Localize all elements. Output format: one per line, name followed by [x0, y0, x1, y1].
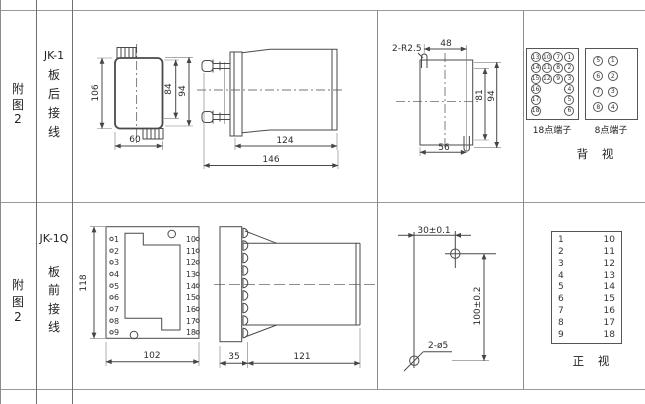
table-cell: 7	[558, 306, 564, 316]
terminal-circle: 1	[564, 52, 574, 62]
table-cell: 9	[558, 330, 564, 340]
left-border	[0, 0, 1, 404]
terminal-circle: 5	[593, 56, 603, 66]
terminal-circle: 17	[531, 95, 541, 105]
terminal-circle: 8	[593, 102, 603, 112]
dim-side2-plate-depth: 35	[228, 352, 239, 362]
front-terminal-10: 10	[182, 235, 196, 244]
rear-view-caption: 背 视	[553, 146, 637, 162]
terminal-circle: 2	[608, 71, 618, 81]
table-cell: 4	[558, 271, 564, 281]
terminal-block-8pt: 5 1 6 2 7 3 8 4	[585, 48, 638, 120]
terminal-circle: 2	[564, 63, 574, 73]
terminal-block-18pt-label: 18点端子	[524, 123, 580, 136]
dim-drill-h-span: 30±0.1	[417, 226, 450, 236]
row-divider	[0, 202, 645, 203]
table-cell: 10	[604, 235, 615, 245]
terminal-circle: 7	[553, 52, 563, 62]
front-terminal-11: 11	[182, 247, 196, 256]
terminal-circle: 16	[531, 84, 541, 94]
fig-label-row1-char3: 2	[0, 112, 36, 126]
table-cell: 17	[604, 318, 615, 328]
front-terminal-6: 6	[114, 293, 119, 302]
front-terminal-12: 12	[182, 258, 196, 267]
table-cell: 15	[604, 294, 615, 304]
terminal-circle: 18	[531, 106, 541, 116]
front-terminal-18: 18	[182, 328, 196, 337]
jk1-side-view-drawing	[195, 40, 347, 172]
dim-cutout-bottom-width: 56	[438, 143, 449, 153]
table-row: 514	[558, 282, 615, 292]
table-cell: 5	[558, 282, 564, 292]
table-cell: 13	[604, 271, 615, 281]
table-cell: 6	[558, 294, 564, 304]
drawing-sheet: 附 图 2 JK-1 板 后 接 线 106 84 94 60	[0, 0, 645, 404]
dim-side-total-depth: 146	[262, 155, 279, 165]
wiring-row2-char2: 前	[36, 281, 72, 298]
front-terminal-9: 9	[114, 328, 119, 337]
terminal-circle: 7	[593, 87, 603, 97]
dim-cutout-slot-note: 2-R2.5	[392, 44, 422, 54]
table-cell: 3	[558, 259, 564, 269]
terminal-circle: 14	[531, 63, 541, 73]
wiring-row1-char3: 接	[36, 104, 72, 121]
table-row: 413	[558, 271, 615, 281]
col-divider-2	[72, 0, 73, 404]
terminal-circle: 1	[608, 56, 618, 66]
dim-rear-height: 106	[91, 84, 101, 101]
table-cell: 2	[558, 247, 564, 257]
wiring-row2-char1: 板	[36, 263, 72, 280]
terminal-circle: 4	[564, 84, 574, 94]
terminal-circle: 4	[608, 102, 618, 112]
table-row: 918	[558, 330, 615, 340]
front-terminal-4: 4	[114, 270, 119, 279]
terminal-circle: 5	[564, 95, 574, 105]
fig-label-row2-char1: 附	[0, 276, 36, 293]
dim-drill-v-span: 100±0.2	[473, 286, 483, 325]
front-terminal-16: 16	[182, 305, 196, 314]
terminal-block-18pt: 13 10 7 1 14 11 8 2 15 12 9 3 16 4 17 5 …	[526, 48, 579, 120]
model-label-jk1q: JK-1Q	[36, 232, 72, 245]
terminal-circle: 10	[542, 52, 552, 62]
jk1q-side-view-drawing	[212, 218, 378, 374]
terminal-circle: 13	[531, 52, 541, 62]
terminal-circle: 6	[564, 106, 574, 116]
table-row: 615	[558, 294, 615, 304]
dim-front-height: 118	[79, 274, 89, 291]
dim-rear-inner-height: 84	[164, 83, 174, 94]
terminal-circle: 12	[542, 74, 552, 84]
terminal-circle: 8	[553, 63, 563, 73]
table-cell: 14	[604, 282, 615, 292]
table-row: 211	[558, 247, 615, 257]
table-row: 817	[558, 318, 615, 328]
dim-side2-body-depth: 121	[293, 352, 310, 362]
front-terminal-2: 2	[114, 247, 119, 256]
dim-cutout-outer-height: 94	[487, 90, 497, 101]
front-view-caption: 正 视	[549, 353, 633, 369]
table-cell: 11	[604, 247, 615, 257]
terminal-circle: 15	[531, 74, 541, 84]
front-terminal-7: 7	[114, 305, 119, 314]
fig-label-row1-char1: 附	[0, 80, 36, 97]
top-border	[0, 10, 645, 11]
wiring-row1-char1: 板	[36, 66, 72, 83]
front-terminal-5: 5	[114, 282, 119, 291]
terminal-circle: 11	[542, 63, 552, 73]
dim-side-body-depth: 124	[276, 136, 293, 146]
dim-drill-hole-note: 2-ø5	[428, 341, 448, 351]
terminal-circle: 6	[593, 71, 603, 81]
table-row: 312	[558, 259, 615, 269]
table-row: 110	[558, 235, 615, 245]
wiring-row1-char2: 后	[36, 85, 72, 102]
front-terminal-15: 15	[182, 293, 196, 302]
terminal-block-8pt-label: 8点端子	[583, 123, 639, 136]
model-label-jk1: JK-1	[36, 49, 72, 62]
fig-label-row2-char3: 2	[0, 310, 36, 324]
terminal-circle: 3	[564, 74, 574, 84]
dim-rear-outer-height: 94	[178, 85, 188, 96]
table-row: 716	[558, 306, 615, 316]
dim-cutout-inner-height: 81	[475, 89, 485, 100]
wiring-row2-char4: 线	[36, 318, 72, 335]
front-terminal-3: 3	[114, 258, 119, 267]
terminal-circle: 3	[608, 87, 618, 97]
terminal-circle: 9	[553, 74, 563, 84]
bottom-border	[0, 389, 645, 390]
jk1q-drill-pattern-drawing	[392, 226, 506, 378]
front-terminal-1: 1	[114, 235, 119, 244]
front-terminal-8: 8	[114, 317, 119, 326]
front-terminal-13: 13	[182, 270, 196, 279]
wiring-row1-char4: 线	[36, 123, 72, 140]
wiring-row2-char3: 接	[36, 300, 72, 317]
table-cell: 12	[604, 259, 615, 269]
dim-cutout-slot-span: 48	[440, 39, 451, 49]
front-terminal-14: 14	[182, 282, 196, 291]
terminal-number-table: 110 211 312 413 514 615 716 817 918	[551, 231, 622, 344]
dim-rear-width: 60	[129, 135, 140, 145]
front-terminal-17: 17	[182, 317, 196, 326]
table-cell: 16	[604, 306, 615, 316]
table-cell: 18	[604, 330, 615, 340]
col-divider-4	[523, 10, 524, 390]
fig-label-row2-char2: 图	[0, 293, 36, 310]
fig-label-row1-char2: 图	[0, 96, 36, 113]
table-cell: 1	[558, 235, 564, 245]
table-cell: 8	[558, 318, 564, 328]
dim-front-width: 102	[143, 351, 160, 361]
